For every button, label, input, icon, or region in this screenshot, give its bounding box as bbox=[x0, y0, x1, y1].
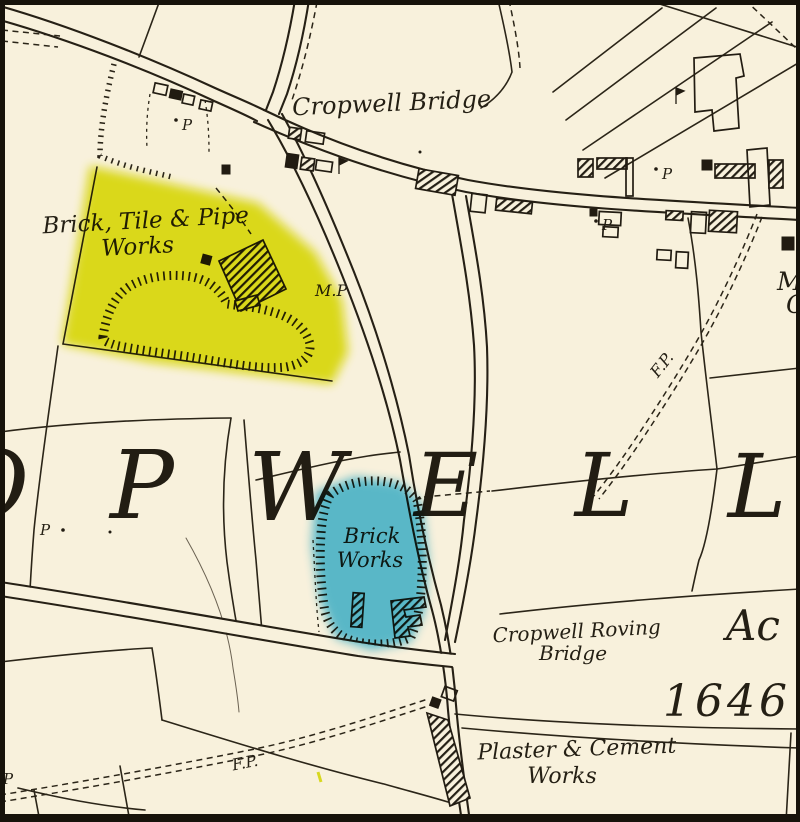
building-hatched bbox=[597, 158, 627, 169]
historic-os-map: O P W E L L Cropwell Bridge Brick, Tile … bbox=[0, 0, 800, 822]
building-solid bbox=[702, 160, 712, 170]
building-hatched bbox=[769, 160, 783, 188]
border-top bbox=[0, 0, 800, 5]
parish-letter: P bbox=[108, 431, 176, 541]
building-hatched bbox=[578, 159, 593, 177]
border-left bbox=[0, 0, 5, 822]
border-right bbox=[796, 0, 800, 822]
building-hatched bbox=[300, 157, 315, 171]
border-bottom bbox=[0, 814, 800, 822]
pump-dot bbox=[61, 528, 65, 532]
map-canvas: O P W E L L Cropwell Bridge Brick, Tile … bbox=[0, 0, 800, 822]
plaster-cement-works-label: Works bbox=[527, 764, 597, 789]
building-solid bbox=[169, 89, 183, 100]
pump-label: P bbox=[181, 116, 193, 134]
building-hatched bbox=[666, 211, 683, 221]
building-solid bbox=[590, 209, 597, 216]
building-hatched bbox=[288, 127, 301, 140]
parcel-number-label: 1646 bbox=[663, 676, 791, 727]
pump-dot bbox=[174, 118, 178, 122]
pump-label: P bbox=[661, 165, 673, 183]
building-hatched bbox=[708, 210, 737, 232]
roving-bridge-label: Bridge bbox=[538, 641, 607, 665]
building-hatched bbox=[495, 198, 532, 214]
pump-label: P bbox=[601, 216, 613, 234]
building-solid bbox=[222, 165, 230, 174]
building-solid bbox=[782, 237, 794, 250]
parish-letter: L bbox=[726, 435, 786, 538]
pump-label: P bbox=[39, 521, 51, 539]
field-dot bbox=[419, 151, 422, 154]
pump-dot bbox=[654, 167, 658, 171]
building-solid bbox=[285, 153, 299, 169]
parish-letter: L bbox=[573, 434, 633, 537]
pump-dot bbox=[594, 219, 598, 223]
acreage-label: Ac bbox=[722, 601, 780, 650]
